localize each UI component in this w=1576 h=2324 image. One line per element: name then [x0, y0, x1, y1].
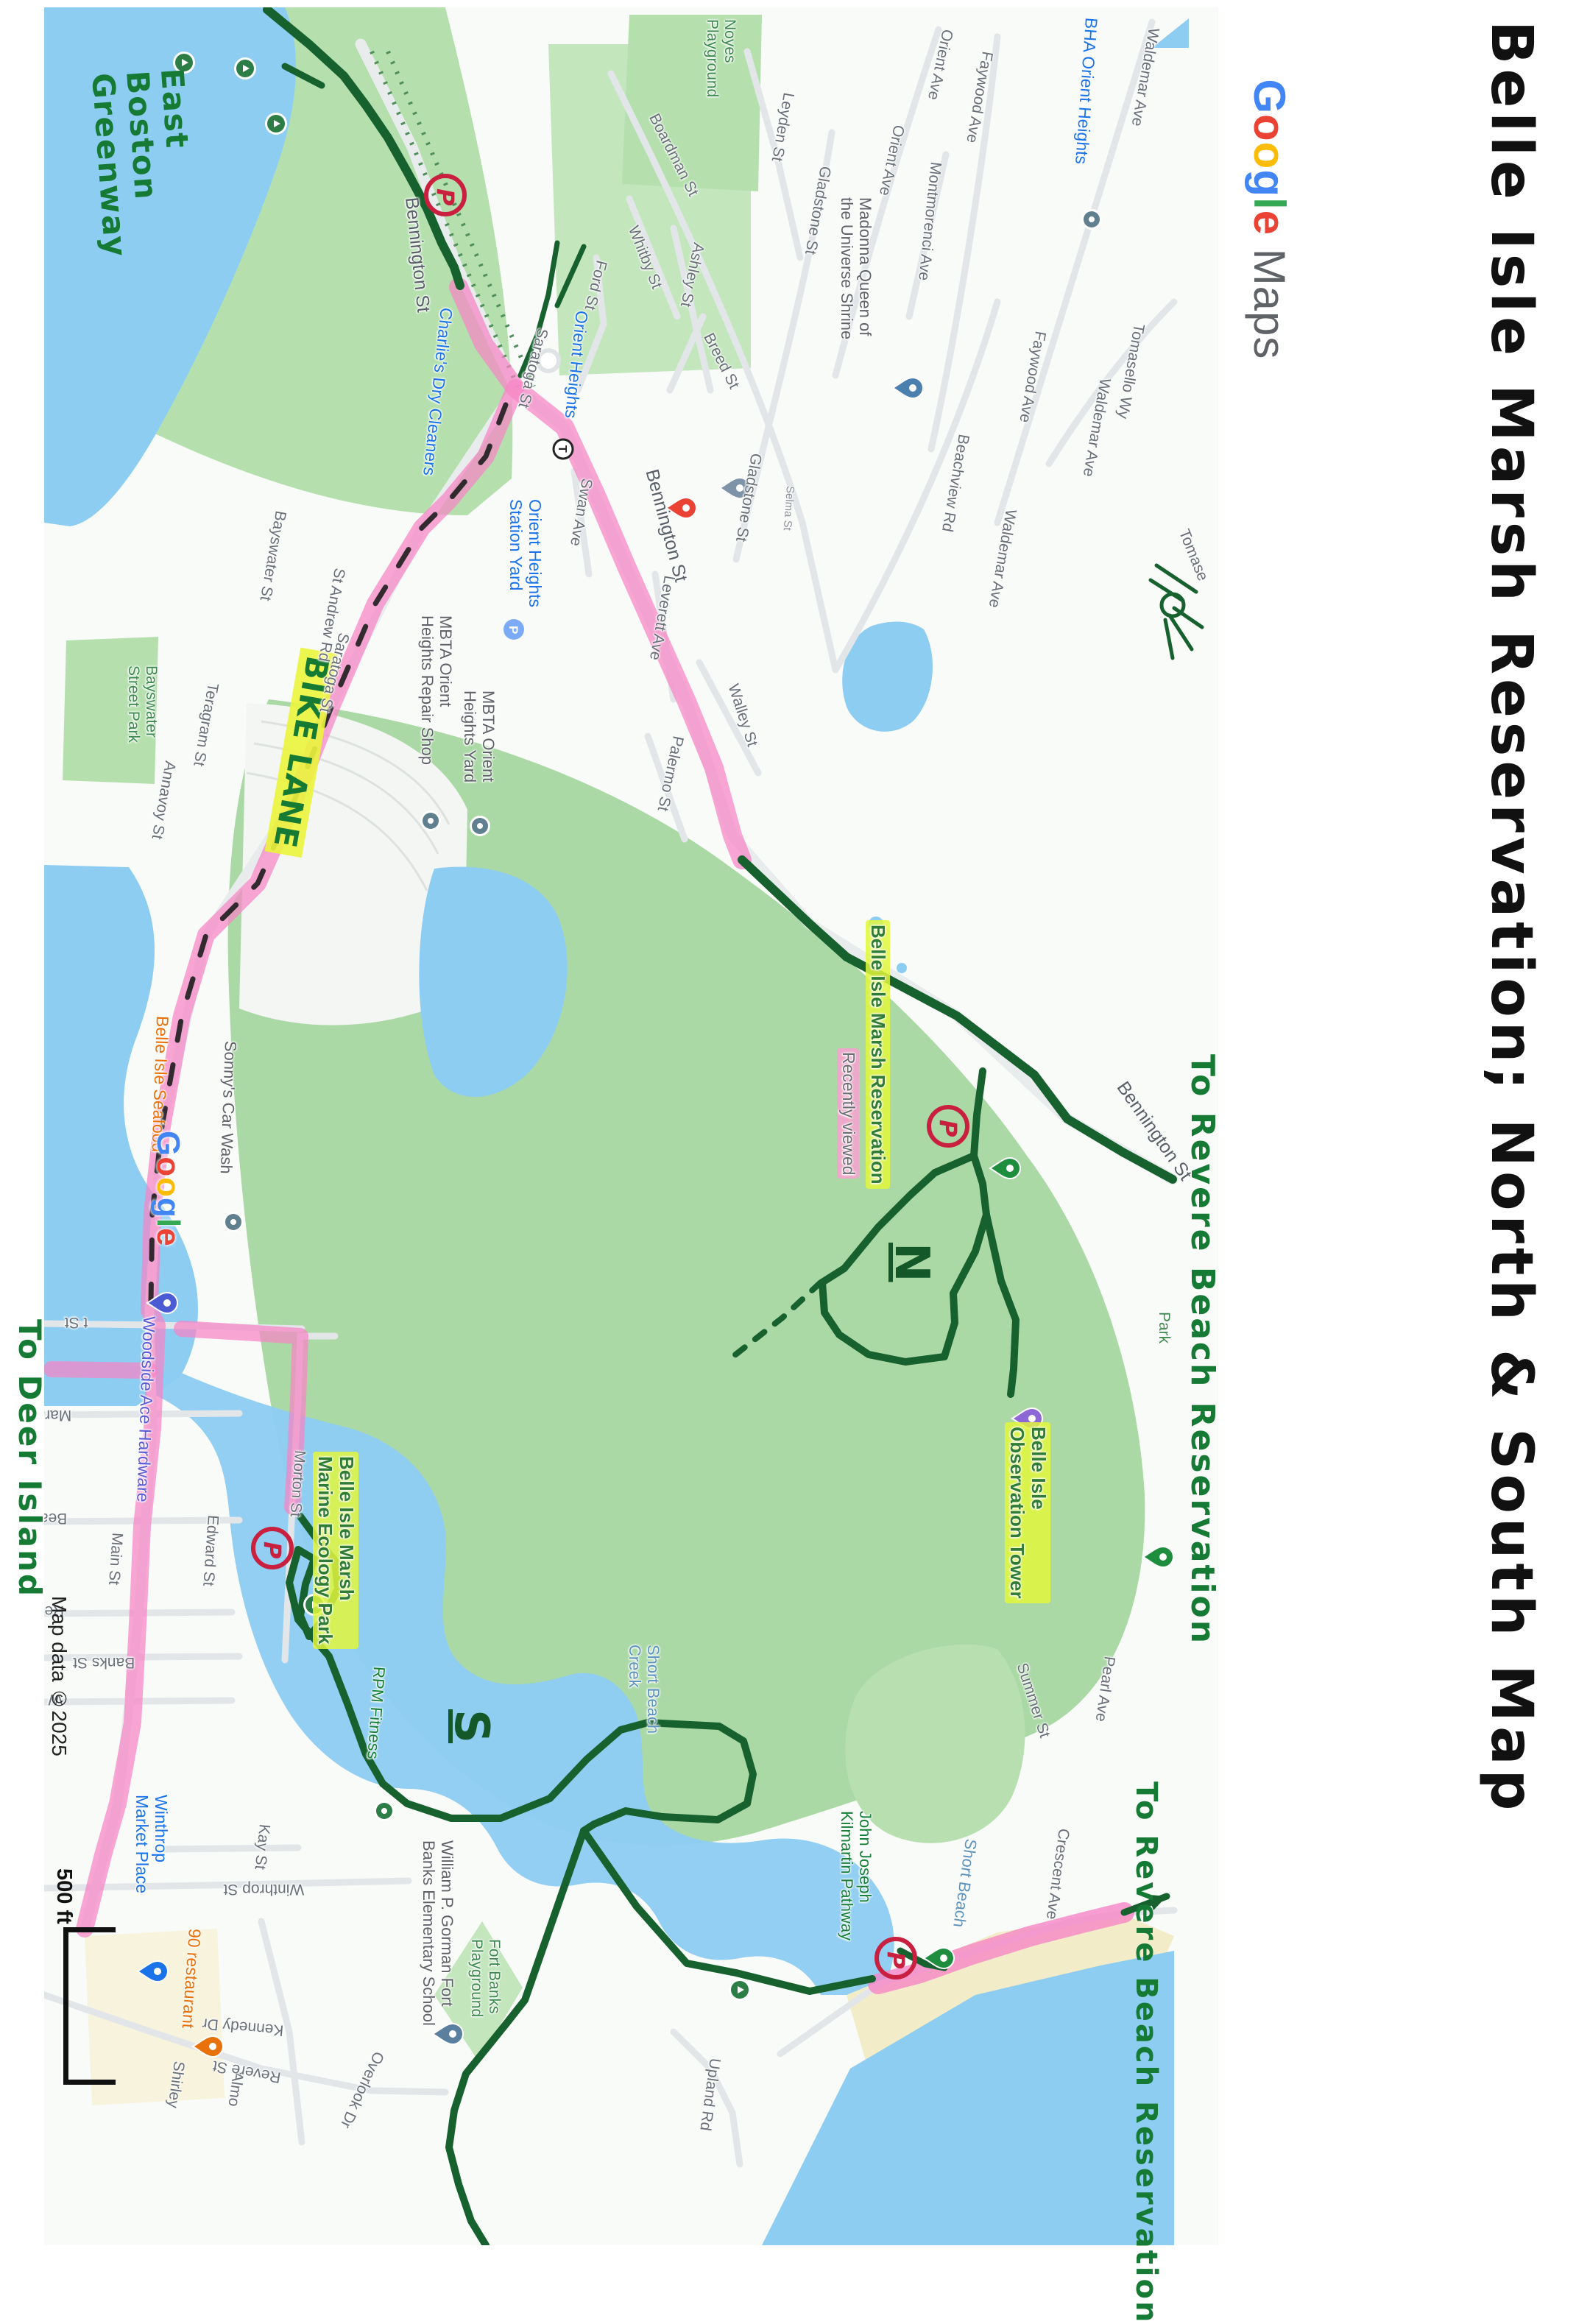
label-winthrop-market-place: Winthrop Market Place: [132, 1795, 171, 1893]
google-watermark-letter: o: [150, 1177, 186, 1198]
label-selma-st: Selma St: [780, 485, 796, 531]
label-leverett-ave: Leverett Ave: [646, 574, 677, 662]
label-mbta-repair-shop: MBTA Orient Heights Repair Shop: [418, 615, 454, 765]
label-montmorenci-ave: Montmorenci Ave: [915, 161, 944, 281]
label-banks-st: Banks St: [73, 1653, 135, 1671]
scanned-map-page: { "page": { "title": "Belle Isle Marsh R…: [0, 0, 1576, 2288]
google-logo-letters: Google: [1245, 79, 1294, 236]
label-oh-station-yard: Orient Heights Station Yard: [506, 499, 545, 607]
label-bennington-st-2: Bennington St: [641, 467, 691, 584]
hand-south-loop: S: [444, 1709, 497, 1743]
label-mars: Mars: [44, 1406, 71, 1424]
label-recently-viewed: Recently viewed: [837, 1048, 859, 1179]
label-reservation: Belle Isle Marsh Reservation: [866, 920, 890, 1189]
google-logo-letter: G: [1245, 79, 1294, 114]
label-overlook-dr: Overlook Dr: [336, 2049, 387, 2130]
scale-bar: [63, 1927, 116, 2085]
map-attribution: Map data ©2025: [47, 1596, 71, 1756]
label-ecology-park: Belle Isle Marsh Marine Ecology Park: [313, 1452, 358, 1649]
label-summer-st: Summer St: [1013, 1661, 1053, 1740]
google-logo-letter: o: [1245, 114, 1294, 142]
google-logo-letter: o: [1245, 142, 1294, 170]
label-ford-st: Ford St: [581, 258, 609, 312]
page-title: Belle Isle Marsh Reservation; North & So…: [1478, 21, 1544, 1815]
label-mbta-yard: MBTA Orient Heights Yard: [461, 691, 497, 783]
label-waldemar-ave-2: Waldemar Ave: [1079, 377, 1114, 478]
label-sonnys-car-wash: Sonny's Car Wash: [216, 1041, 239, 1174]
google-watermark-letter: o: [150, 1156, 186, 1177]
label-tomase: Tomase: [1175, 527, 1211, 584]
label-swan-ave: Swan Ave: [567, 477, 596, 548]
label-t-st: t St: [65, 1313, 88, 1331]
scale-label: 500 ft: [52, 1868, 76, 1924]
label-walley-st: Walley St: [724, 682, 761, 749]
label-annavoy-st: Annavoy St: [148, 760, 179, 841]
hand-north-loop: N: [884, 1243, 937, 1282]
label-saratoga-st-1: Saratoga St: [515, 326, 551, 409]
label-short-beach-creek: Short Beach Creek: [626, 1645, 662, 1734]
label-palermo-st: Palermo St: [654, 735, 687, 813]
google-logo-letter: g: [1245, 169, 1294, 197]
google-watermark-letter: G: [150, 1131, 186, 1156]
label-woodside-ace: Woodside Ace Hardware: [132, 1316, 158, 1502]
label-rpm-fitness: RPM Fitness: [364, 1666, 388, 1759]
label-edward-st: Edward St: [199, 1514, 222, 1586]
map-labels: East Boston GreenwayBIKE LANENSBenningto…: [44, 7, 1218, 2245]
label-whitby-st: Whitby St: [624, 224, 665, 292]
label-charlies-dry-cleaners: Charlie's Dry Cleaners: [419, 307, 456, 477]
label-bayswater-park: Bayswater Street Park: [125, 665, 160, 743]
label-fort-banks-playground: Fort Banks Playground: [468, 1939, 503, 2017]
annotation-to-revere-south: To Revere Beach Reservation: [1129, 1781, 1163, 2324]
label-orient-heights: Orient Heights: [561, 310, 591, 420]
label-bennington-st-1: Bennington St: [401, 197, 434, 314]
label-ashley-st: Ashley St: [676, 241, 707, 309]
google-watermark-letter: g: [150, 1198, 186, 1218]
maps-wordmark: Maps: [1245, 249, 1294, 360]
google-maps-logo: Google Maps: [1244, 53, 1346, 359]
label-faywood-ave-2: Faywood Ave: [1016, 330, 1049, 424]
label-breed-st: Breed St: [700, 331, 743, 392]
label-leyden-st: Leyden St: [768, 91, 797, 163]
label-faywood-ave-1: Faywood Ave: [963, 50, 996, 144]
label-kay-st: Kay St: [251, 1823, 273, 1871]
label-pearl-ave: Pearl Ave: [1092, 1655, 1118, 1723]
google-logo-letter: e: [1245, 211, 1294, 236]
label-short-beach: Short Beach: [950, 1837, 980, 1928]
label-noyes-playground: Noyes Playground: [704, 19, 738, 97]
map-canvas: PPPPTP East Boston GreenwayBIKE LANENSBe…: [44, 7, 1218, 2245]
label-gorman-school: William P. Gorman Fort Banks Elementary …: [420, 1840, 456, 2026]
label-tomasello-wy: Tomasello Wy: [1114, 322, 1148, 420]
map[interactable]: PPPPTP East Boston GreenwayBIKE LANENSBe…: [44, 7, 1218, 2245]
label-bayswater-st: Bayswater St: [256, 509, 289, 602]
label-madonna-shrine: Madonna Queen of the Universe Shrine: [838, 197, 874, 339]
label-beachview-rd: Beachview Rd: [938, 433, 972, 533]
label-waldemar-ave-3: Waldemar Ave: [985, 508, 1020, 609]
label-90-restaurant: 90 restaurant: [178, 1928, 204, 2029]
label-kilmartin-pathway: John Joseph Kilmartin Pathway: [838, 1811, 874, 1940]
label-gladstone-st-1: Gladstone St: [802, 165, 834, 256]
label-main-st: Main St: [105, 1532, 126, 1586]
label-upland-rd: Upland Rd: [696, 2057, 724, 2132]
label-morton-st: Morton St: [286, 1449, 308, 1517]
label-park: Park: [1155, 1312, 1173, 1343]
label-teragram-st: Teragram St: [190, 682, 222, 768]
google-watermark-letter: e: [150, 1228, 186, 1246]
label-orient-ave-1: Orient Ave: [924, 28, 955, 102]
label-shirley: Shirley: [164, 2060, 188, 2109]
label-boardman-st: Boardman St: [646, 111, 702, 199]
google-watermark-letter: l: [150, 1218, 186, 1228]
label-crescent-ave: Crescent Ave: [1042, 1827, 1073, 1921]
label-gladstone-st-2: Gladstone St: [732, 452, 765, 543]
label-bha-orient-heights: BHA Orient Heights: [1071, 17, 1100, 165]
annotation-to-revere-north: To Revere Beach Reservation: [1184, 1054, 1221, 1645]
label-orient-ave-2: Orient Ave: [875, 124, 907, 197]
label-kennedy-dr: Kennedy Dr: [202, 2015, 285, 2039]
google-logo-letter: l: [1245, 197, 1294, 211]
label-revere-st: Revere St: [211, 2057, 282, 2085]
label-observation-tower: Belle Isle Observation Tower: [1005, 1422, 1050, 1603]
hand-east-boston-greenway: East Boston Greenway: [85, 67, 202, 259]
google-watermark: Google: [150, 1131, 186, 1247]
label-waldemar-ave-1: Waldemar Ave: [1128, 27, 1162, 127]
annotation-to-deer-island: To Deer Island: [12, 1319, 48, 1598]
label-winthrop-st: Winthrop St: [224, 1880, 305, 1898]
